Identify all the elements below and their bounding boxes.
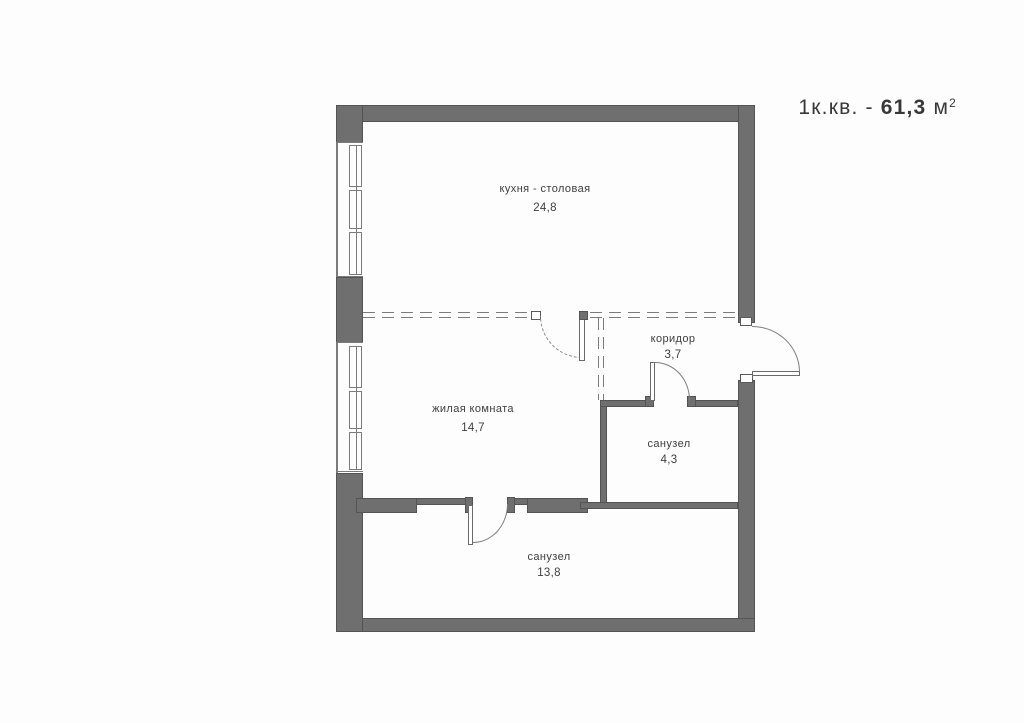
wall-right-lower — [738, 380, 755, 632]
window-1-outer-line — [336, 143, 338, 277]
door-arc-bathroom — [655, 362, 690, 400]
window-2-mullion — [349, 387, 362, 392]
entrance-jamb-top — [740, 317, 752, 326]
partition-door-leaf — [579, 315, 585, 361]
window-1-reveal-top — [336, 142, 363, 143]
wall-living-bottom-thin-left — [416, 498, 466, 505]
partition-dashed-horizontal-right — [590, 312, 738, 318]
window-1-reveal-bottom — [336, 276, 363, 277]
room-label-corridor: коридор 3,7 — [651, 333, 696, 361]
plan-title-prefix: 1к.кв. - — [798, 96, 880, 119]
wall-left-pier-middle — [336, 277, 363, 343]
wall-bathroom-top-right — [690, 400, 738, 407]
plan-title-area: 61,3 — [881, 96, 927, 119]
window-2-reveal-bottom — [336, 471, 363, 472]
room-area: 4,3 — [647, 454, 690, 466]
room-name: санузел — [527, 551, 570, 563]
room-label-bathroom: санузел 4,3 — [647, 438, 690, 466]
wall-living-bottom-thin-right — [514, 498, 528, 505]
wall-bathroom-left — [600, 400, 607, 509]
plan-title-sup: 2 — [949, 96, 957, 110]
room-area: 24,8 — [500, 202, 591, 214]
room-name: жилая комната — [432, 403, 514, 415]
wall-bathroom-bottom — [580, 502, 738, 509]
window-2-reveal-top — [336, 342, 363, 343]
door-arc-lower-room — [473, 504, 508, 543]
room-name: санузел — [647, 438, 690, 450]
room-area: 14,7 — [432, 422, 514, 434]
plan-title: 1к.кв. - 61,3 м2 — [798, 96, 957, 120]
room-area: 13,8 — [527, 567, 570, 579]
wall-top — [336, 105, 755, 122]
plan-title-unit: м — [926, 96, 949, 119]
window-1-mullion — [349, 228, 362, 233]
window-2 — [349, 346, 362, 470]
room-name: коридор — [651, 333, 696, 345]
room-label-kitchen: кухня - столовая 24,8 — [500, 183, 591, 214]
room-label-bathroom-2: санузел 13,8 — [527, 551, 570, 579]
wall-left-pier-bottom — [336, 473, 363, 632]
wall-right-upper — [738, 105, 755, 323]
wall-bottom — [336, 618, 755, 632]
wall-living-bottom-thick-right — [527, 498, 588, 513]
wall-left-pier-top — [336, 105, 363, 143]
entrance-door-arc — [752, 326, 800, 372]
partition-door-hinge-post — [579, 311, 588, 320]
partition-door-arc — [540, 316, 582, 358]
room-area: 3,7 — [651, 349, 696, 361]
window-1 — [349, 145, 362, 275]
partition-dashed-vertical — [598, 318, 604, 400]
partition-dashed-horizontal-left — [363, 312, 533, 318]
room-name: кухня - столовая — [500, 183, 591, 195]
floor-plan: 1к.кв. - 61,3 м2 — [0, 0, 1024, 723]
room-label-living: жилая комната 14,7 — [432, 403, 514, 434]
window-1-mullion — [349, 186, 362, 191]
window-2-mullion — [349, 428, 362, 433]
window-2-outer-line — [336, 343, 338, 473]
wall-living-bottom-thick-left — [356, 498, 417, 513]
wall-bathroom-top-left — [600, 400, 650, 407]
